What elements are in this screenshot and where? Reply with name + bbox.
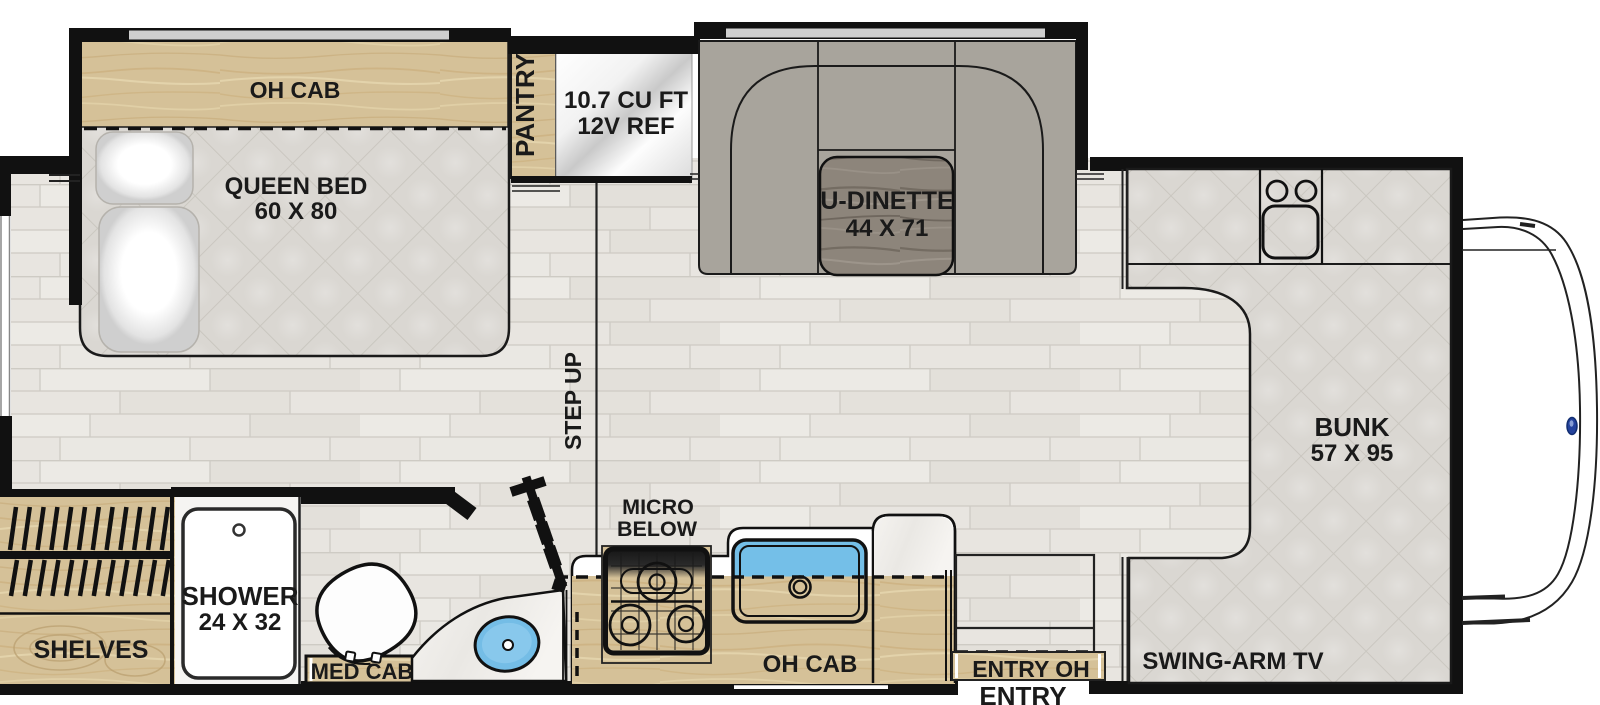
svg-text:44 X 71: 44 X 71 (846, 215, 929, 242)
svg-text:SWING-ARM TV: SWING-ARM TV (1142, 648, 1323, 675)
svg-text:60 X 80: 60 X 80 (255, 198, 338, 225)
svg-text:SHOWER: SHOWER (182, 581, 299, 611)
svg-text:MICRO: MICRO (622, 495, 694, 519)
svg-text:BELOW: BELOW (617, 517, 698, 541)
svg-text:QUEEN BED: QUEEN BED (225, 173, 368, 200)
svg-text:SHELVES: SHELVES (34, 636, 149, 664)
svg-text:10.7 CU FT: 10.7 CU FT (564, 87, 688, 114)
svg-text:OH CAB: OH CAB (763, 651, 858, 678)
svg-text:24 X 32: 24 X 32 (199, 609, 282, 636)
svg-text:MED CAB: MED CAB (311, 659, 414, 684)
svg-text:ENTRY: ENTRY (979, 681, 1066, 705)
svg-text:PANTRY: PANTRY (510, 53, 540, 157)
svg-text:BUNK: BUNK (1314, 412, 1389, 442)
svg-text:U-DINETTE: U-DINETTE (820, 187, 953, 215)
svg-text:STEP UP: STEP UP (560, 352, 586, 450)
svg-text:57 X 95: 57 X 95 (1311, 440, 1394, 467)
svg-text:ENTRY OH: ENTRY OH (972, 656, 1090, 682)
svg-text:12V REF: 12V REF (577, 113, 674, 140)
svg-text:OH CAB: OH CAB (250, 77, 341, 103)
